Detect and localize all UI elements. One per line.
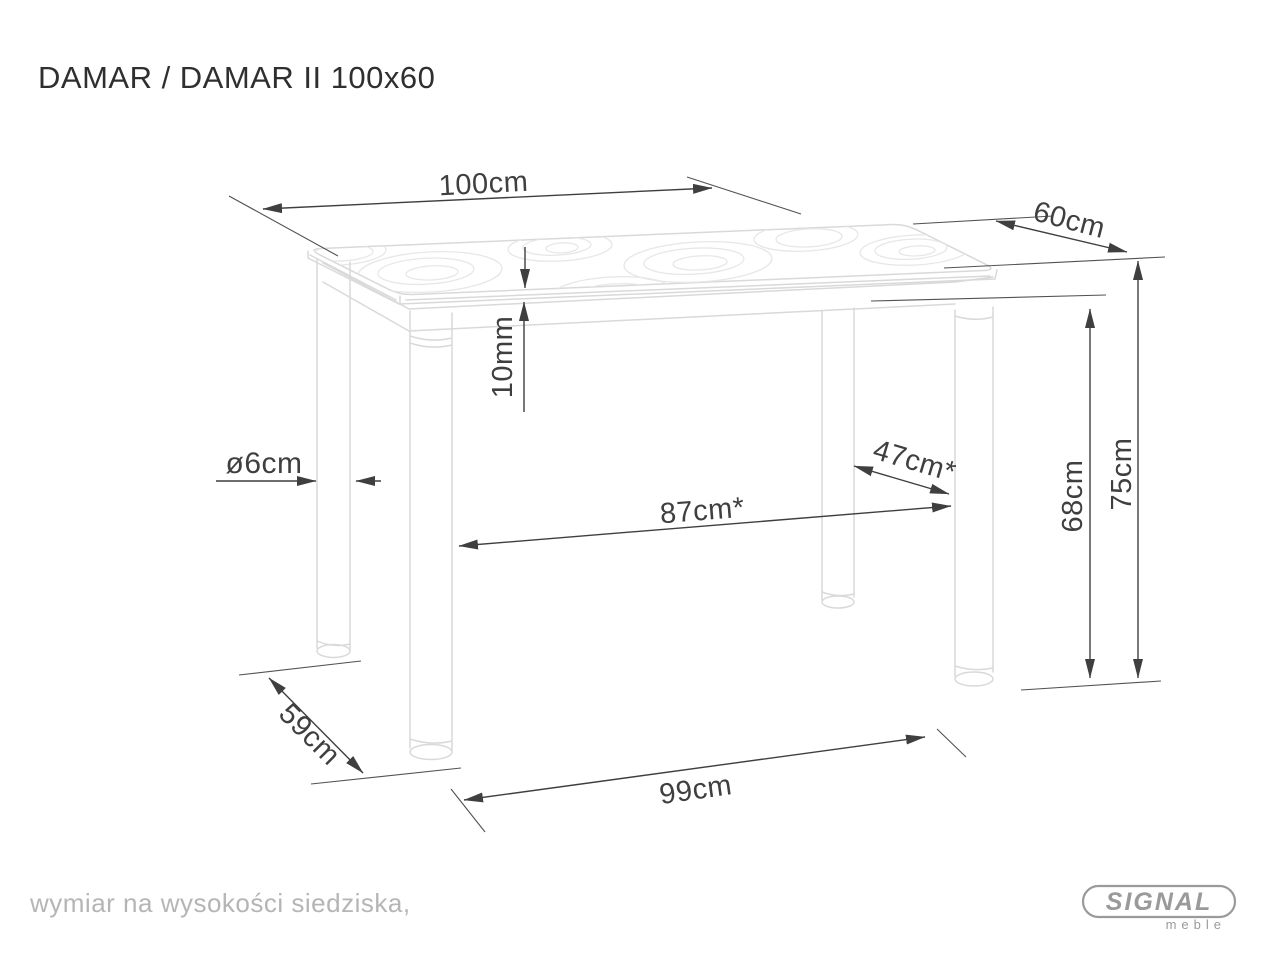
dim-label-clearance-depth: 47cm* bbox=[869, 434, 959, 489]
dimension-apron-clearance-68cm: 68cm bbox=[871, 295, 1106, 678]
dimension-base-width-99cm: 99cm bbox=[451, 729, 966, 832]
dimension-base-depth-59cm: 59cm bbox=[239, 661, 461, 784]
table-illustration bbox=[293, 220, 1025, 759]
extension-line bbox=[451, 789, 485, 832]
table-leg-front-right bbox=[955, 307, 993, 686]
dimension-leg-diameter-6cm: ø6cm bbox=[216, 447, 381, 481]
dim-label-top-depth: 60cm bbox=[1030, 196, 1109, 245]
technical-drawing-canvas: DAMAR / DAMAR II 100x60 wymiar na wysoko… bbox=[0, 0, 1280, 979]
page-title: DAMAR / DAMAR II 100x60 bbox=[38, 60, 435, 95]
dim-label-base-width: 99cm bbox=[657, 769, 734, 811]
dim-label-top-width: 100cm bbox=[438, 166, 529, 203]
dim-label-glass-thickness: 10mm bbox=[487, 316, 519, 399]
table-leg-front-left bbox=[410, 311, 452, 760]
extension-line bbox=[239, 661, 361, 675]
logo-sub-text: meble bbox=[1166, 917, 1226, 932]
extension-line bbox=[937, 729, 966, 757]
footnote-note: wymiar na wysokości siedziska, bbox=[29, 888, 411, 918]
extension-line bbox=[871, 295, 1106, 301]
table-leg-back-right bbox=[822, 308, 854, 608]
extension-line bbox=[687, 177, 801, 214]
logo-brand-text: SIGNAL bbox=[1106, 888, 1212, 916]
dimension-total-height-75cm: 75cm bbox=[1021, 261, 1161, 690]
dimension-clearance-width-87cm: 87cm* bbox=[459, 492, 951, 546]
extension-line bbox=[311, 768, 461, 784]
dim-label-clearance-width: 87cm* bbox=[659, 492, 746, 531]
table-leg-back-left bbox=[317, 259, 350, 658]
signal-logo: SIGNAL meble bbox=[1083, 886, 1235, 932]
extension-line bbox=[1021, 681, 1161, 690]
dim-label-apron-clearance: 68cm bbox=[1057, 460, 1089, 533]
dim-label-total-height: 75cm bbox=[1106, 438, 1138, 511]
extension-line bbox=[229, 196, 338, 256]
dim-label-base-depth: 59cm bbox=[272, 698, 346, 772]
dim-label-leg-diameter: ø6cm bbox=[226, 447, 303, 480]
furniture-dimension-sheet: DAMAR / DAMAR II 100x60 wymiar na wysoko… bbox=[0, 0, 1280, 979]
dimension-clearance-depth-47cm: 47cm* bbox=[854, 434, 960, 494]
